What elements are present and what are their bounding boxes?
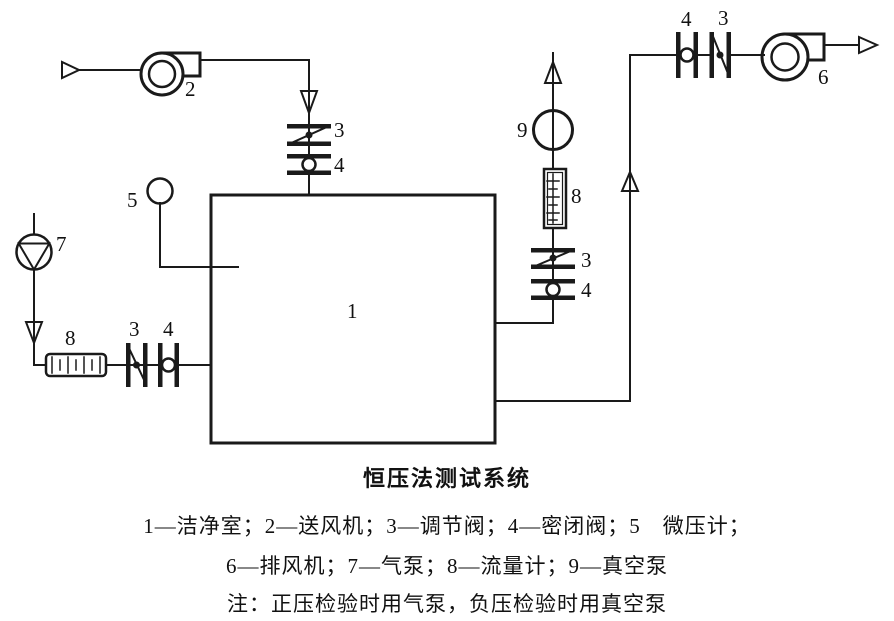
pipe-lines [34, 45, 859, 401]
pipe-room-to-right-valves [495, 228, 553, 323]
label-flow-meter: 8 [65, 326, 76, 350]
figure-title: 恒压法测试系统 [0, 461, 894, 493]
regulating-valve-symbol [126, 343, 148, 387]
valve-ball [547, 283, 560, 296]
label-regulating-valve: 3 [334, 118, 345, 142]
label-sealing-valve: 4 [581, 278, 592, 302]
label-flow-meter: 8 [571, 184, 582, 208]
fan-body-icon [762, 34, 808, 80]
sealing-valve-symbol [531, 279, 575, 300]
regulating-valve-symbol [710, 32, 732, 78]
legend-line-1: 1—洁净室；2—送风机；3—调节阀；4—密闭阀；5 微压计； [0, 510, 894, 540]
regulating-valve-symbol [531, 248, 575, 269]
pump-body-icon [17, 235, 52, 270]
valve-pivot [550, 255, 557, 262]
label-vacuum-pump: 9 [517, 118, 528, 142]
label-sealing-valve: 4 [163, 317, 174, 341]
valve-pivot [717, 52, 724, 59]
label-supply-fan: 2 [185, 77, 196, 101]
arrow-right-icon [859, 37, 877, 53]
label-regulating-valve: 3 [129, 317, 140, 341]
pipe-exhaust-riser [495, 55, 676, 401]
pipe-gauge-tap [160, 203, 238, 267]
arrow-right-icon [62, 62, 79, 78]
sealing-valve-symbol [676, 32, 698, 78]
sealing-valve-symbol [287, 154, 331, 175]
label-regulating-valve: 3 [718, 6, 729, 30]
exhaust-fan-symbol [762, 34, 824, 80]
valve-pivot [133, 362, 140, 369]
figure-note: 注：正压检验时用气泵，负压检验时用真空泵 [0, 588, 894, 618]
label-room: 1 [347, 299, 358, 323]
label-air-pump: 7 [56, 232, 67, 256]
air-pump-symbol [17, 235, 52, 270]
label-sealing-valve: 4 [334, 153, 345, 177]
figure: 1 2 3 4 5 7 8 3 4 9 8 3 4 4 3 6 恒压法测试系统 … [0, 0, 894, 621]
pipe-pump7-down [34, 269, 46, 365]
flow-meter-left-symbol [46, 354, 106, 376]
flow-meter-right-symbol [544, 169, 566, 228]
label-sealing-valve: 4 [681, 7, 692, 31]
label-regulating-valve: 3 [581, 248, 592, 272]
micro-pressure-gauge-symbol [148, 179, 173, 204]
fan-impeller-icon [149, 61, 175, 87]
system-diagram: 1 2 3 4 5 7 8 3 4 9 8 3 4 4 3 6 [0, 0, 894, 450]
label-exhaust-fan: 6 [818, 65, 829, 89]
fan-impeller-icon [772, 44, 799, 71]
valve-ball [162, 359, 175, 372]
sealing-valve-symbol [158, 343, 179, 387]
valve-pivot [306, 132, 313, 139]
legend-line-2: 6—排风机；7—气泵；8—流量计；9—真空泵 [0, 550, 894, 580]
valve-ball [303, 158, 316, 171]
valve-ball [681, 49, 694, 62]
fan-body-icon [141, 53, 183, 95]
figure-caption: 恒压法测试系统 1—洁净室；2—送风机；3—调节阀；4—密闭阀；5 微压计； 6… [0, 450, 894, 618]
label-micro-pressure-gauge: 5 [127, 188, 138, 212]
regulating-valve-symbol [287, 124, 331, 146]
